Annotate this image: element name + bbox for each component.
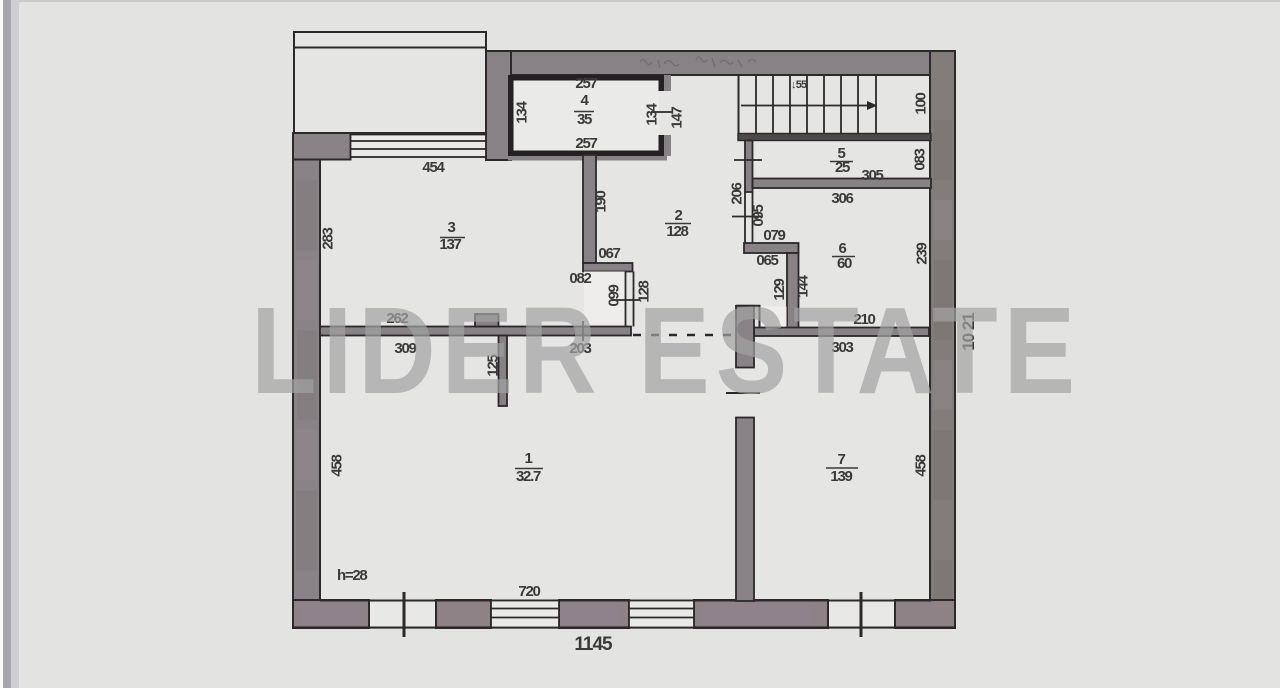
svg-text:306: 306	[831, 190, 853, 207]
svg-text:305: 305	[861, 167, 883, 184]
svg-text:079: 079	[763, 227, 785, 244]
svg-text:134: 134	[514, 100, 531, 123]
svg-text:283: 283	[320, 227, 337, 249]
svg-text:32.7: 32.7	[516, 468, 541, 485]
svg-text:257: 257	[575, 135, 597, 152]
svg-text:1: 1	[524, 450, 532, 467]
svg-text:h=28: h=28	[337, 567, 367, 584]
svg-text:190: 190	[593, 190, 610, 212]
svg-text:7: 7	[837, 451, 845, 468]
svg-text:095: 095	[750, 204, 767, 226]
svg-text:↓55: ↓55	[791, 79, 807, 91]
svg-text:067: 067	[598, 245, 620, 262]
svg-text:257: 257	[575, 75, 597, 92]
svg-text:35: 35	[577, 111, 592, 128]
svg-text:128: 128	[666, 223, 688, 240]
svg-text:458: 458	[913, 454, 930, 476]
svg-text:2: 2	[674, 207, 682, 224]
svg-text:137: 137	[439, 236, 461, 253]
svg-text:720: 720	[518, 583, 540, 600]
svg-text:065: 065	[756, 252, 778, 269]
svg-text:25: 25	[835, 159, 850, 176]
svg-text:60: 60	[837, 255, 852, 272]
svg-text:LIDER ESTATE: LIDER ESTATE	[251, 281, 1081, 420]
svg-text:100: 100	[913, 92, 930, 114]
svg-text:083: 083	[912, 148, 929, 170]
svg-text:147: 147	[669, 106, 686, 128]
svg-text:454: 454	[422, 159, 445, 176]
svg-text:458: 458	[329, 454, 346, 476]
svg-text:139: 139	[830, 468, 852, 485]
svg-text:3: 3	[447, 219, 455, 236]
svg-text:134: 134	[644, 102, 661, 125]
svg-text:206: 206	[729, 182, 746, 204]
svg-text:239: 239	[914, 242, 931, 264]
svg-text:1145: 1145	[574, 634, 613, 655]
